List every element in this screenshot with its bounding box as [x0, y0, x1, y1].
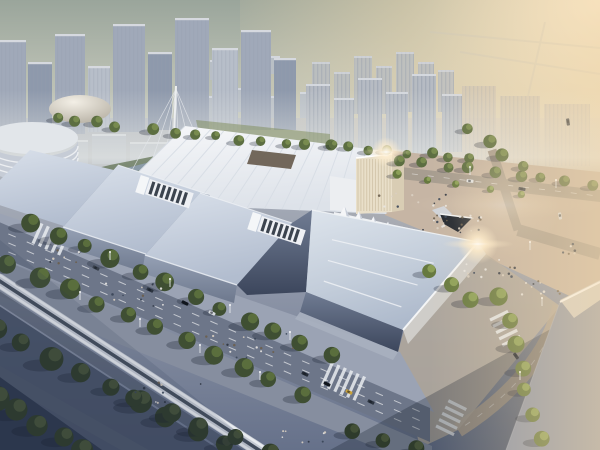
tree-highlight: [57, 113, 63, 119]
sun-glint-streak: [359, 148, 413, 156]
person-dot: [324, 431, 326, 433]
person-dot: [160, 287, 162, 289]
person-dot: [57, 262, 59, 264]
light-head: [289, 331, 291, 333]
person-dot: [75, 261, 77, 263]
person-dot: [142, 295, 144, 297]
light-head: [259, 371, 261, 373]
person-dot: [212, 335, 214, 337]
slab-cap: [396, 52, 414, 54]
warm-right-veil: [430, 0, 600, 450]
tree-highlight: [174, 129, 180, 135]
person-dot: [260, 350, 262, 352]
tree-highlight: [113, 122, 119, 128]
tree-highlight: [350, 424, 359, 433]
tree-highlight: [73, 116, 79, 122]
tower-cap: [175, 18, 209, 20]
tree-highlight: [194, 130, 200, 136]
tower-cap: [55, 34, 85, 36]
light-head: [169, 278, 171, 280]
tower-cap: [212, 48, 238, 50]
person-dot: [113, 299, 115, 301]
person-dot: [140, 298, 142, 300]
person-dot: [63, 256, 65, 258]
person-dot: [378, 194, 381, 197]
tree-highlight: [303, 139, 309, 145]
person-dot: [205, 335, 207, 337]
person-dot: [229, 351, 231, 353]
person-dot: [383, 205, 385, 207]
tree-highlight: [271, 323, 280, 332]
tower-cap: [148, 52, 172, 54]
person-dot: [322, 441, 324, 443]
tower-cap: [241, 30, 271, 32]
slab-cap: [312, 62, 330, 64]
tree-highlight: [194, 290, 203, 299]
person-dot: [308, 441, 310, 443]
light-head: [229, 304, 231, 306]
person-dot: [254, 338, 256, 340]
tree-highlight: [56, 228, 66, 238]
person-dot: [52, 258, 54, 260]
light-head: [109, 251, 111, 253]
person-dot: [301, 441, 303, 443]
person-dot: [152, 305, 154, 307]
slab-cap: [306, 84, 330, 86]
person-dot: [395, 193, 397, 195]
tree-highlight: [301, 387, 310, 396]
person-dot: [422, 229, 424, 231]
person-dot: [391, 196, 393, 198]
tree-highlight: [153, 319, 162, 328]
person-dot: [397, 205, 399, 207]
tree-highlight: [414, 441, 423, 450]
tower-cap: [113, 24, 145, 26]
tree-highlight: [259, 137, 264, 142]
person-dot: [243, 336, 245, 338]
person-dot: [233, 344, 236, 347]
tree-highlight: [381, 434, 389, 442]
tower-cap: [28, 62, 52, 64]
tree-highlight: [126, 308, 134, 316]
person-dot: [282, 436, 284, 438]
person-dot: [200, 383, 202, 385]
light-head: [139, 318, 141, 320]
slab-cap: [334, 72, 350, 74]
tree-highlight: [330, 348, 339, 357]
tower-cap: [0, 40, 26, 42]
person-dot: [246, 357, 248, 359]
tree-highlight: [108, 250, 119, 261]
person-dot: [49, 261, 51, 263]
tree-highlight: [162, 273, 172, 283]
person-dot: [411, 194, 413, 196]
person-dot: [256, 346, 258, 348]
person-dot: [122, 295, 124, 297]
person-dot: [272, 351, 274, 353]
tree-highlight: [28, 215, 38, 225]
tree-highlight: [332, 141, 337, 146]
tree-highlight: [152, 124, 159, 131]
tree-highlight: [68, 279, 79, 290]
tree-highlight: [211, 347, 221, 357]
light-head: [199, 344, 201, 346]
person-dot: [236, 357, 238, 359]
light-head: [79, 291, 81, 293]
tree-highlight: [347, 142, 353, 148]
aerial-render: [0, 0, 600, 450]
tree-highlight: [427, 177, 431, 181]
tower-cap: [274, 58, 296, 60]
tree-highlight: [215, 132, 220, 137]
tree-highlight: [83, 240, 91, 248]
person-dot: [111, 293, 114, 296]
aerial-render-canvas: [0, 0, 600, 450]
person-dot: [105, 283, 107, 285]
slab-cap: [358, 78, 382, 80]
tree-highlight: [420, 157, 426, 163]
slab-cap: [376, 66, 392, 68]
tree-highlight: [248, 313, 258, 323]
person-dot: [152, 283, 154, 285]
tower-cap: [88, 66, 110, 68]
tree-highlight: [285, 140, 290, 145]
back-hall-annex: [330, 176, 356, 212]
tree-highlight: [266, 372, 275, 381]
person-dot: [292, 347, 294, 349]
tree-highlight: [185, 333, 195, 343]
person-dot: [56, 249, 58, 251]
person-dot: [286, 333, 288, 335]
person-dot: [78, 251, 80, 253]
person-dot: [162, 304, 164, 306]
tree-highlight: [237, 136, 243, 142]
tree-highlight: [94, 297, 103, 306]
person-dot: [285, 430, 287, 432]
person-dot: [226, 344, 228, 346]
tree-highlight: [139, 265, 148, 274]
person-dot: [282, 430, 284, 432]
tree-highlight: [242, 359, 253, 370]
person-dot: [223, 343, 225, 345]
tree-highlight: [95, 116, 101, 122]
tree-highlight: [298, 336, 307, 345]
person-dot: [141, 287, 143, 289]
slab-cap: [354, 56, 372, 58]
tree-highlight: [218, 303, 226, 311]
person-dot: [260, 347, 262, 349]
tree-highlight: [396, 170, 401, 175]
